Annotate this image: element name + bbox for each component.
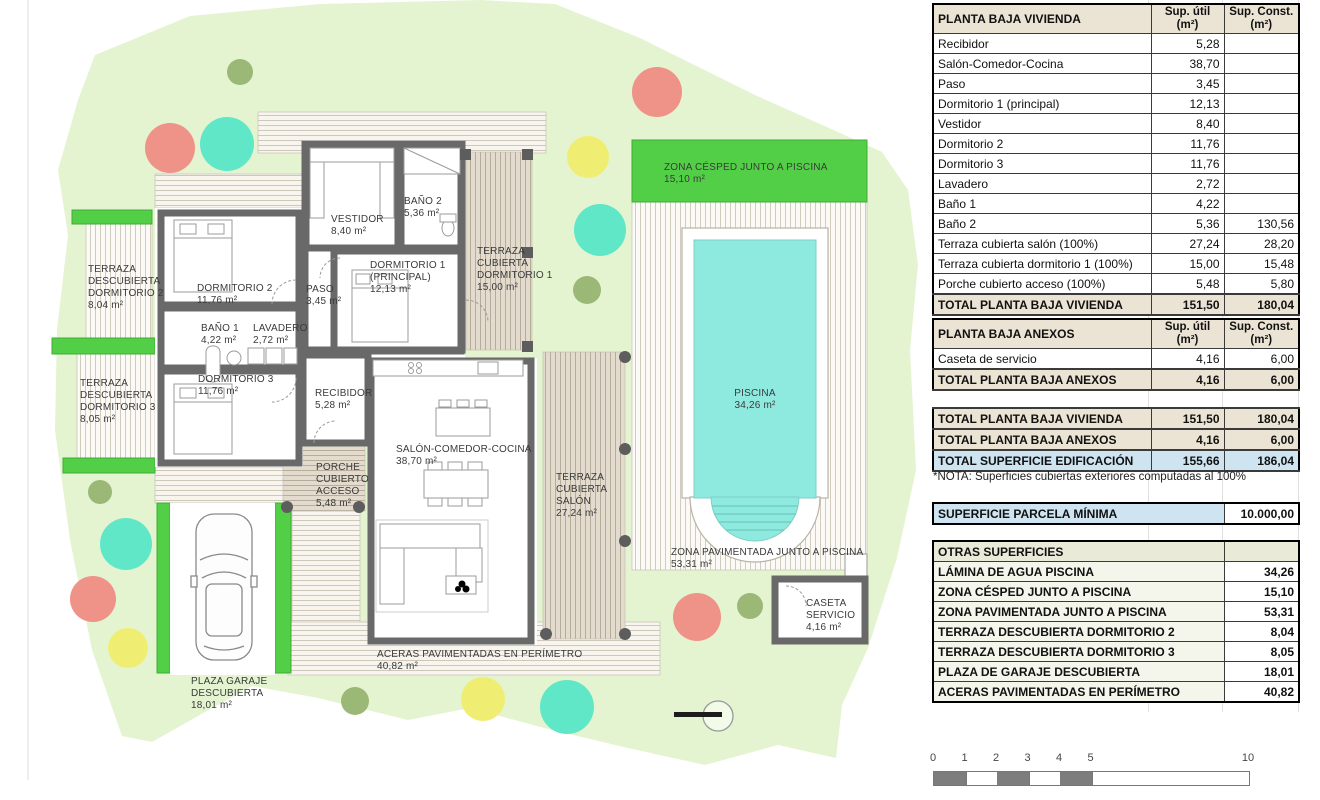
table-row: Porche cubierto acceso (100%) 5,48 5,80 — [933, 274, 1299, 295]
table-row: TOTAL SUPERFICIE EDIFICACIÓN 155,66 186,… — [933, 450, 1299, 471]
row-value: 34,26 — [1224, 562, 1299, 582]
row-sup-const: 15,48 — [1224, 254, 1299, 274]
row-sup-util: 15,00 — [1151, 254, 1224, 274]
row-sup-const: 186,04 — [1224, 450, 1299, 471]
scale-tick — [966, 772, 967, 785]
table-planta-baja-anexos: PLANTA BAJA ANEXOS Sup. útil (m²) Sup. C… — [932, 318, 1300, 391]
col-header-sup-util: Sup. útil (m²) — [1151, 4, 1224, 34]
table-header-row: OTRAS SUPERFICIES — [933, 541, 1299, 562]
scale-bar-rule — [933, 771, 1250, 786]
row-sup-util: 4,16 — [1151, 429, 1224, 450]
row-sup-const: 130,56 — [1224, 214, 1299, 234]
row-sup-const: 28,20 — [1224, 234, 1299, 254]
scale-segment-filled — [934, 772, 966, 785]
row-sup-util: 4,22 — [1151, 194, 1224, 214]
label-aceras: ACERAS PAVIMENTADAS EN PERÍMETRO 40,82 m… — [377, 649, 582, 673]
row-label: Vestidor — [933, 114, 1151, 134]
row-label: Porche cubierto acceso (100%) — [933, 274, 1151, 295]
row-label: TOTAL SUPERFICIE EDIFICACIÓN — [933, 450, 1151, 471]
label-dormitorio-1: DORMITORIO 1 (PRINCIPAL) 12,13 m² — [370, 260, 446, 296]
table-row: Dormitorio 3 11,76 — [933, 154, 1299, 174]
label-terraza-cubierta-salon: TERRAZA CUBIERTA SALÓN 27,24 m² — [556, 472, 607, 520]
label-porche-cubierto-acceso: PORCHE CUBIERTO ACCESO 5,48 m² — [316, 462, 369, 510]
row-sup-const: 6,00 — [1224, 429, 1299, 450]
row-label: Dormitorio 2 — [933, 134, 1151, 154]
row-value: 53,31 — [1224, 602, 1299, 622]
table-row: Recibidor 5,28 — [933, 34, 1299, 54]
label-terraza-cubierta-dormitorio-1: TERRAZA CUBIERTA DORMITORIO 1 15,00 m² — [477, 246, 553, 294]
row-label: ZONA PAVIMENTADA JUNTO A PISCINA — [933, 602, 1224, 622]
row-label: Lavadero — [933, 174, 1151, 194]
row-label: ACERAS PAVIMENTADAS EN PERÍMETRO — [933, 682, 1224, 703]
row-sup-util: 38,70 — [1151, 54, 1224, 74]
row-sup-util: 4,16 — [1151, 349, 1224, 370]
row-sup-const — [1224, 134, 1299, 154]
row-sup-util: 8,40 — [1151, 114, 1224, 134]
table-row: Salón-Comedor-Cocina 38,70 — [933, 54, 1299, 74]
row-label: TOTAL PLANTA BAJA VIVIENDA — [933, 294, 1151, 315]
scale-bar: 0 1 2 3 4 5 10 — [933, 752, 1263, 794]
scale-number: 2 — [993, 752, 999, 764]
row-sup-const — [1224, 34, 1299, 54]
row-sup-const — [1224, 114, 1299, 134]
scale-number: 3 — [1024, 752, 1030, 764]
table-row: LÁMINA DE AGUA PISCINA 34,26 — [933, 562, 1299, 582]
label-terraza-descubierta-dormitorio-2: TERRAZA DESCUBIERTA DORMITORIO 2 8,04 m² — [88, 264, 164, 312]
row-label: Caseta de servicio — [933, 349, 1151, 370]
label-caseta-servicio: CASETA SERVICIO 4,16 m² — [806, 598, 855, 634]
row-value: 40,82 — [1224, 682, 1299, 703]
table-row: PLAZA DE GARAJE DESCUBIERTA 18,01 — [933, 662, 1299, 682]
table-row: TOTAL PLANTA BAJA ANEXOS 4,16 6,00 — [933, 369, 1299, 390]
row-label: TOTAL PLANTA BAJA VIVIENDA — [933, 408, 1151, 429]
scale-segment-filled — [997, 772, 1029, 785]
row-label: PLAZA DE GARAJE DESCUBIERTA — [933, 662, 1224, 682]
area-tables-panel: PLANTA BAJA VIVIENDA Sup. útil (m²) Sup.… — [930, 0, 1305, 800]
row-sup-util: 4,16 — [1151, 369, 1224, 390]
table-row: Baño 1 4,22 — [933, 194, 1299, 214]
row-sup-const — [1224, 54, 1299, 74]
label-bano-2: BAÑO 2 5,36 m² — [404, 196, 442, 220]
table-superficie-parcela: SUPERFICIE PARCELA MÍNIMA 10.000,00 — [932, 502, 1300, 525]
row-sup-util: 151,50 — [1151, 294, 1224, 315]
row-label: TOTAL PLANTA BAJA ANEXOS — [933, 369, 1151, 390]
label-lavadero: LAVADERO 2,72 m² — [253, 323, 308, 347]
row-label: TERRAZA DESCUBIERTA DORMITORIO 3 — [933, 642, 1224, 662]
row-label: Baño 2 — [933, 214, 1151, 234]
row-sup-util: 11,76 — [1151, 134, 1224, 154]
table-row: TOTAL PLANTA BAJA VIVIENDA 151,50 180,04 — [933, 408, 1299, 429]
table-row: TERRAZA DESCUBIERTA DORMITORIO 3 8,05 — [933, 642, 1299, 662]
row-label: ZONA CÉSPED JUNTO A PISCINA — [933, 582, 1224, 602]
row-label: Baño 1 — [933, 194, 1151, 214]
label-dormitorio-2: DORMITORIO 2 11,76 m² — [197, 283, 273, 307]
row-label: Terraza cubierta dormitorio 1 (100%) — [933, 254, 1151, 274]
label-zona-cesped: ZONA CÉSPED JUNTO A PISCINA 15,10 m² — [664, 162, 828, 186]
table-planta-baja-vivienda: PLANTA BAJA VIVIENDA Sup. útil (m²) Sup.… — [932, 3, 1300, 316]
floor-plan: TERRAZA DESCUBIERTA DORMITORIO 2 8,04 m²… — [0, 0, 930, 800]
label-terraza-descubierta-dormitorio-3: TERRAZA DESCUBIERTA DORMITORIO 3 8,05 m² — [80, 378, 156, 426]
table-resumen-totales: TOTAL PLANTA BAJA VIVIENDA 151,50 180,04… — [932, 407, 1300, 472]
row-label: TERRAZA DESCUBIERTA DORMITORIO 2 — [933, 622, 1224, 642]
row-label: Dormitorio 1 (principal) — [933, 94, 1151, 114]
row-sup-util: 2,72 — [1151, 174, 1224, 194]
row-sup-util: 5,48 — [1151, 274, 1224, 295]
scale-number: 0 — [930, 752, 936, 764]
row-sup-const: 5,80 — [1224, 274, 1299, 295]
table-row: Caseta de servicio 4,16 6,00 — [933, 349, 1299, 370]
row-sup-const — [1224, 194, 1299, 214]
col-header-sup-const: Sup. Const. (m²) — [1224, 319, 1299, 349]
table-row: TOTAL PLANTA BAJA ANEXOS 4,16 6,00 — [933, 429, 1299, 450]
table-row: Dormitorio 1 (principal) 12,13 — [933, 94, 1299, 114]
row-value: 18,01 — [1224, 662, 1299, 682]
scale-number: 10 — [1242, 752, 1254, 764]
table-row: Terraza cubierta salón (100%) 27,24 28,2… — [933, 234, 1299, 254]
label-recibidor: RECIBIDOR 5,28 m² — [315, 388, 372, 412]
table-otras-superficies: OTRAS SUPERFICIES LÁMINA DE AGUA PISCINA… — [932, 540, 1300, 703]
label-zona-pavimentada: ZONA PAVIMENTADA JUNTO A PISCINA 53,31 m… — [671, 547, 863, 571]
row-sup-const — [1224, 154, 1299, 174]
table-row: Dormitorio 2 11,76 — [933, 134, 1299, 154]
row-value: 8,04 — [1224, 622, 1299, 642]
row-sup-const: 180,04 — [1224, 408, 1299, 429]
row-sup-util: 5,36 — [1151, 214, 1224, 234]
table-row: Lavadero 2,72 — [933, 174, 1299, 194]
scale-tick — [1092, 772, 1093, 785]
label-salon-comedor-cocina: SALÓN-COMEDOR-COCINA 38,70 m² — [396, 444, 532, 468]
scale-number: 4 — [1056, 752, 1062, 764]
table-row: Vestidor 8,40 — [933, 114, 1299, 134]
row-label: Salón-Comedor-Cocina — [933, 54, 1151, 74]
scale-number: 1 — [961, 752, 967, 764]
row-sup-util: 155,66 — [1151, 450, 1224, 471]
row-sup-const — [1224, 74, 1299, 94]
otras-title-spacer — [1224, 541, 1299, 562]
table-row: TOTAL PLANTA BAJA VIVIENDA 151,50 180,04 — [933, 294, 1299, 315]
table-row: ZONA CÉSPED JUNTO A PISCINA 15,10 — [933, 582, 1299, 602]
label-plaza-garaje: PLAZA GARAJE DESCUBIERTA 18,01 m² — [191, 676, 267, 712]
table-row: Baño 2 5,36 130,56 — [933, 214, 1299, 234]
row-sup-util: 3,45 — [1151, 74, 1224, 94]
row-sup-util: 5,28 — [1151, 34, 1224, 54]
row-label: TOTAL PLANTA BAJA ANEXOS — [933, 429, 1151, 450]
row-sup-util: 11,76 — [1151, 154, 1224, 174]
table-row: TERRAZA DESCUBIERTA DORMITORIO 2 8,04 — [933, 622, 1299, 642]
row-label: Dormitorio 3 — [933, 154, 1151, 174]
parcela-label: SUPERFICIE PARCELA MÍNIMA — [933, 503, 1224, 524]
parcela-value: 10.000,00 — [1224, 503, 1299, 524]
col-header-sup-util: Sup. útil (m²) — [1151, 319, 1224, 349]
row-sup-util: 12,13 — [1151, 94, 1224, 114]
row-label: LÁMINA DE AGUA PISCINA — [933, 562, 1224, 582]
scale-tick — [1029, 772, 1030, 785]
row-value: 15,10 — [1224, 582, 1299, 602]
table-title: PLANTA BAJA VIVIENDA — [933, 4, 1151, 34]
table-row: ZONA PAVIMENTADA JUNTO A PISCINA 53,31 — [933, 602, 1299, 622]
row-sup-util: 151,50 — [1151, 408, 1224, 429]
otras-title: OTRAS SUPERFICIES — [933, 541, 1224, 562]
label-piscina: PISCINA 34,26 m² — [705, 388, 805, 412]
row-label: Recibidor — [933, 34, 1151, 54]
row-sup-const: 6,00 — [1224, 349, 1299, 370]
row-sup-util: 27,24 — [1151, 234, 1224, 254]
car — [191, 514, 257, 660]
site-plan-sheet: TERRAZA DESCUBIERTA DORMITORIO 2 8,04 m²… — [0, 0, 1320, 800]
label-vestidor: VESTIDOR 8,40 m² — [331, 214, 384, 238]
row-sup-const — [1224, 174, 1299, 194]
scale-number: 5 — [1087, 752, 1093, 764]
table-title: PLANTA BAJA ANEXOS — [933, 319, 1151, 349]
row-value: 8,05 — [1224, 642, 1299, 662]
scale-segment-filled — [1060, 772, 1092, 785]
row-sup-const: 180,04 — [1224, 294, 1299, 315]
footnote: *NOTA: Superficies cubiertas exteriores … — [933, 471, 1246, 483]
label-dormitorio-3: DORMITORIO 3 11,76 m² — [198, 374, 274, 398]
label-bano-1: BAÑO 1 4,22 m² — [201, 323, 239, 347]
row-sup-const — [1224, 94, 1299, 114]
table-row: Paso 3,45 — [933, 74, 1299, 94]
row-sup-const: 6,00 — [1224, 369, 1299, 390]
table-row: SUPERFICIE PARCELA MÍNIMA 10.000,00 — [933, 503, 1299, 524]
row-label: Paso — [933, 74, 1151, 94]
row-label: Terraza cubierta salón (100%) — [933, 234, 1151, 254]
label-paso: PASO 3,45 m² — [306, 284, 341, 308]
table-row: ACERAS PAVIMENTADAS EN PERÍMETRO 40,82 — [933, 682, 1299, 703]
table-row: Terraza cubierta dormitorio 1 (100%) 15,… — [933, 254, 1299, 274]
col-header-sup-const: Sup. Const. (m²) — [1224, 4, 1299, 34]
